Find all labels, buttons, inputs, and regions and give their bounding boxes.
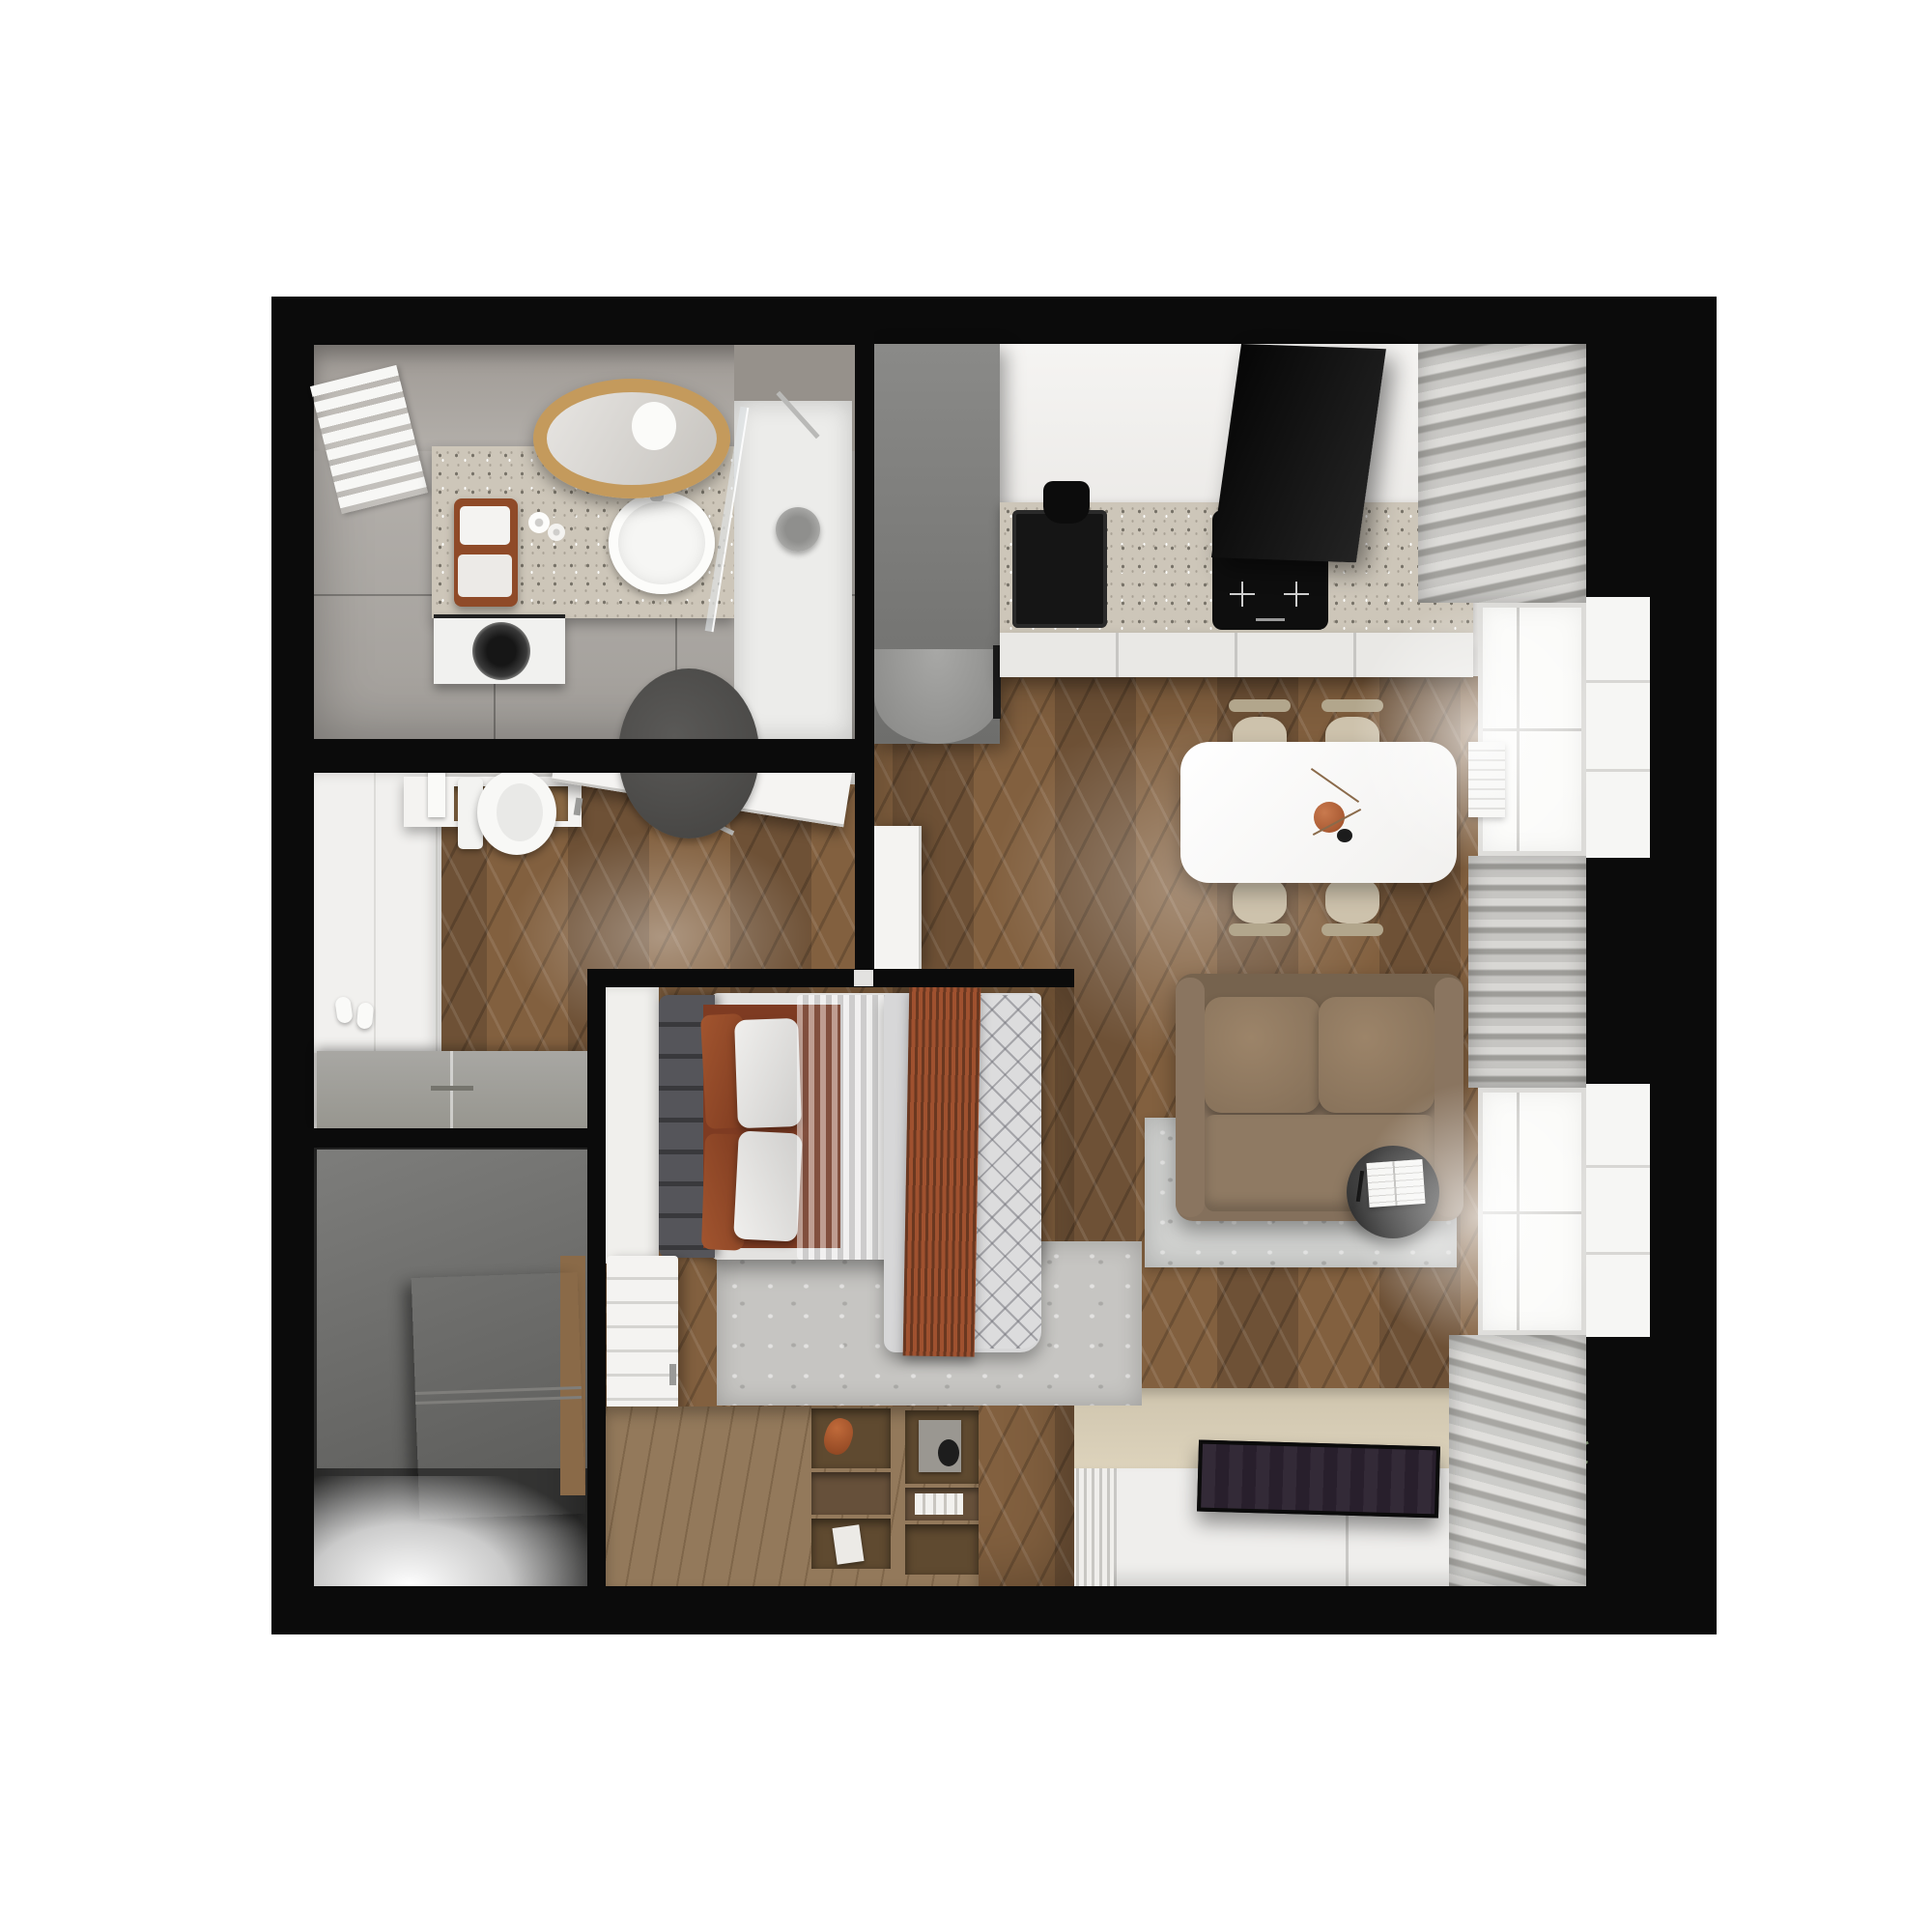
rust-throw [903, 986, 981, 1356]
curtain-top [1418, 344, 1586, 603]
wall-hall-closet-divider [271, 1128, 606, 1148]
table-black-bowl [1337, 829, 1352, 842]
wall-bathroom-bottom [314, 739, 874, 773]
towel-top [460, 506, 510, 545]
cubby-1b [811, 1472, 891, 1515]
kitchen-door-open [874, 826, 922, 969]
extractor-hood [1211, 344, 1386, 562]
wall-bedroom-top [587, 969, 1074, 987]
white-pillow-bottom [733, 1130, 803, 1241]
window-recess-top [1478, 603, 1586, 856]
wall-closet-vertical [587, 969, 606, 1634]
dining-chair-bottom-right [1325, 877, 1379, 923]
bed-sheet-fold [797, 995, 889, 1260]
toilet-seat [497, 783, 543, 841]
wardrobe-light-spill [314, 1476, 587, 1586]
shower-tray [734, 401, 852, 739]
side-table [1347, 1146, 1439, 1238]
window-radiator [1468, 742, 1505, 817]
tv [1197, 1440, 1440, 1519]
shower-head [776, 507, 820, 552]
window-box-bottom [1586, 1084, 1650, 1337]
cubby-2a [905, 1410, 979, 1484]
sofa-arm-right [1435, 978, 1463, 1217]
kitchen-faucet [1043, 481, 1090, 524]
cubby-2b [905, 1488, 979, 1520]
sofa-cushion-right [1319, 997, 1435, 1113]
toilet [458, 766, 560, 859]
bedroom-wall-strip [606, 987, 659, 1264]
cubby-1c [811, 1519, 891, 1569]
cubby-book-white [832, 1524, 864, 1565]
apartment-floor-plan [0, 0, 1932, 1932]
cubby-black-vase [938, 1439, 959, 1466]
wardrobe-room [314, 1148, 587, 1586]
vessel-sink [609, 492, 715, 594]
toilet-paper-roll-2 [548, 524, 565, 541]
hall-shoe-cabinet [317, 1051, 587, 1128]
dining-chair-top-left-back [1229, 699, 1291, 712]
magazine-pen [1356, 1171, 1364, 1202]
cubby-2c [905, 1524, 979, 1575]
magazine [1366, 1159, 1425, 1207]
washer-door [472, 622, 530, 680]
washing-machine [434, 614, 565, 684]
cubby-vase [820, 1415, 857, 1459]
dining-chair-bottom-left-back [1229, 923, 1291, 936]
curtain-middle [1468, 856, 1586, 1088]
cabinet-rounded-front [874, 649, 1000, 744]
stool-with-towels [454, 498, 518, 607]
curtain-bottom [1449, 1335, 1586, 1586]
mirror-reflection [632, 402, 676, 450]
kitchen-drawer-fronts [1000, 633, 1473, 677]
sofa-arm-left [1176, 978, 1205, 1217]
kitchen-tall-cabinet [874, 344, 1000, 744]
sofa-cushion-left [1205, 997, 1321, 1113]
towel-bottom [458, 554, 512, 597]
kitchen-sink [1012, 510, 1107, 628]
bedroom-door-jamb [854, 970, 873, 986]
dining-chair-bottom-left [1233, 877, 1287, 923]
window-recess-bottom [1478, 1088, 1586, 1335]
round-mirror [533, 379, 730, 498]
dining-chair-top-right-back [1321, 699, 1383, 712]
table-vase [1314, 802, 1345, 833]
dresser-handle [669, 1364, 676, 1385]
white-pillow-top [734, 1018, 802, 1128]
shoe-cabinet-handle [431, 1086, 473, 1091]
toilet-paper-roll [528, 512, 550, 533]
dining-chair-bottom-right-back [1321, 923, 1383, 936]
wall-kitchen-vertical [855, 297, 874, 969]
cubby-1a [811, 1408, 891, 1468]
cubby-books-row [915, 1493, 963, 1515]
bathroom [314, 345, 855, 739]
bed-duvet-quilted [969, 995, 1041, 1349]
bedroom [606, 987, 1074, 1586]
window-box-top [1586, 597, 1650, 858]
